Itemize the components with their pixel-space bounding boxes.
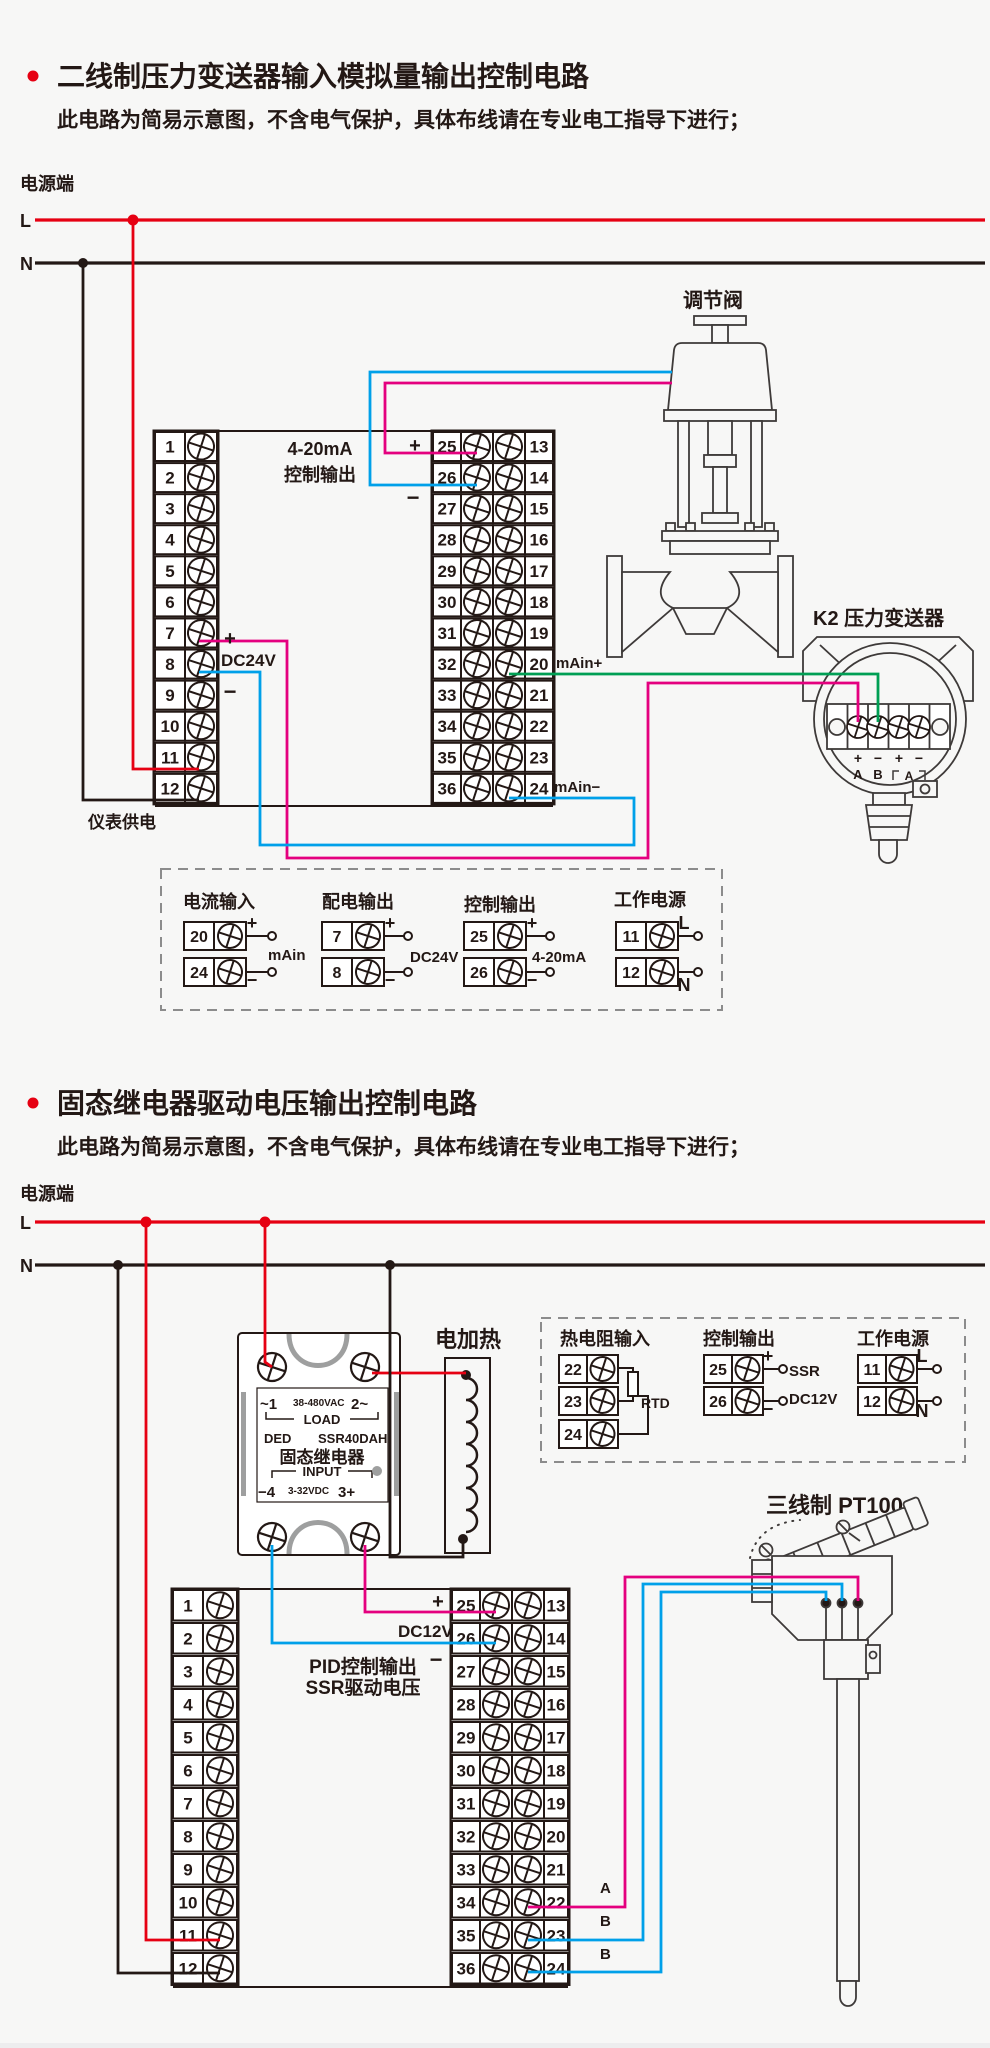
terminal-number-26: 26 bbox=[457, 1629, 476, 1648]
legend-terminal-26: 26 bbox=[709, 1394, 727, 1411]
terminal-number-32: 32 bbox=[438, 655, 457, 674]
legend-work-power-2: 工作电源11L12N bbox=[857, 1328, 941, 1421]
terminal-number-24: 24 bbox=[547, 1959, 566, 1978]
legend-control-output: 控制输出25+26−4-20mA bbox=[464, 894, 586, 990]
terminal-number-8: 8 bbox=[165, 655, 174, 674]
line-l-label: L bbox=[20, 1213, 31, 1233]
legend-terminal-25: 25 bbox=[470, 929, 488, 946]
ssr-model: SSR40DAH bbox=[318, 1431, 387, 1446]
ssr-load-label: LOAD bbox=[304, 1412, 341, 1427]
terminal-number-14: 14 bbox=[547, 1629, 566, 1648]
legend-terminal-20: 20 bbox=[190, 929, 208, 946]
term-b-label: B bbox=[873, 767, 882, 782]
legend-tag: + bbox=[527, 913, 538, 933]
terminal-number-28: 28 bbox=[438, 531, 457, 550]
pt100-sensor: 三线制 PT100 bbox=[750, 1493, 929, 2006]
wire-24-to-pt100 bbox=[528, 1592, 826, 1972]
heater-label: 电加热 bbox=[435, 1327, 501, 1352]
wiring-diagram-page: 二线制压力变送器输入模拟量输出控制电路 此电路为简易示意图，不含电气保护，具体布… bbox=[0, 0, 990, 2043]
dc12v-label: DC12V bbox=[398, 1622, 453, 1641]
terminal-number-1: 1 bbox=[183, 1596, 192, 1615]
terminal-strip-left: 123456789101112 bbox=[154, 430, 219, 805]
legend-terminal-24: 24 bbox=[190, 965, 208, 982]
ssr-term4: −4 bbox=[258, 1484, 276, 1501]
legend-terminal-11: 11 bbox=[623, 929, 640, 946]
heater-coil-icon bbox=[466, 1378, 477, 1532]
wire-b-label: B bbox=[600, 1946, 611, 1963]
terminal-number-4: 4 bbox=[165, 531, 175, 550]
terminal-number-13: 13 bbox=[530, 438, 549, 457]
terminal-number-13: 13 bbox=[547, 1596, 566, 1615]
dc24v-label: DC24V bbox=[221, 651, 276, 670]
terminal-number-11: 11 bbox=[179, 1926, 197, 1945]
valve-label: 调节阀 bbox=[683, 288, 743, 312]
term-sign: + bbox=[854, 750, 862, 766]
open-terminal-icon bbox=[404, 932, 412, 940]
section-1-subtitle: 此电路为简易示意图，不含电气保护，具体布线请在专业电工指导下进行； bbox=[57, 108, 750, 132]
term-sign: − bbox=[874, 750, 882, 766]
legend-tag: − bbox=[763, 1399, 774, 1419]
legend-control-output-2: 控制输出25+26−SSRDC12V bbox=[703, 1328, 837, 1419]
ssr-input-label: INPUT bbox=[303, 1464, 342, 1479]
output-type-label: 4-20mA bbox=[287, 439, 352, 459]
section-1-title: 二线制压力变送器输入模拟量输出控制电路 bbox=[57, 60, 590, 92]
open-terminal-icon bbox=[779, 1365, 787, 1373]
terminal-number-33: 33 bbox=[438, 686, 457, 705]
legend-terminal-11: 11 bbox=[864, 1362, 881, 1379]
terminal-number-5: 5 bbox=[165, 562, 174, 581]
legend-title: 配电输出 bbox=[322, 891, 394, 912]
terminal-number-15: 15 bbox=[530, 500, 549, 519]
minus-sign: − bbox=[407, 485, 420, 510]
legend-tag: − bbox=[527, 970, 538, 990]
terminal-number-16: 16 bbox=[530, 531, 549, 550]
terminal-number-19: 19 bbox=[530, 624, 549, 643]
legend-terminal-8: 8 bbox=[333, 965, 342, 982]
ssr-vac: 38-480VAC bbox=[293, 1398, 345, 1409]
open-terminal-icon bbox=[268, 968, 276, 976]
legend-side-label: mAin bbox=[268, 947, 306, 964]
terminal-number-12: 12 bbox=[161, 779, 180, 798]
open-terminal-icon bbox=[779, 1397, 787, 1405]
terminal-number-24: 24 bbox=[530, 779, 549, 798]
main-minus-label: mAin− bbox=[554, 779, 601, 796]
legend-terminal-24: 24 bbox=[564, 1427, 582, 1444]
terminal-strip-left-2: 123456789101112 bbox=[172, 1589, 239, 1986]
terminal-number-6: 6 bbox=[183, 1761, 192, 1780]
terminal-number-7: 7 bbox=[165, 624, 174, 643]
terminal-number-11: 11 bbox=[161, 748, 179, 767]
terminal-number-27: 27 bbox=[457, 1662, 476, 1681]
legend-terminal-26: 26 bbox=[470, 965, 488, 982]
open-terminal-icon bbox=[546, 968, 554, 976]
transmitter-label: K2 压力变送器 bbox=[813, 606, 945, 630]
legend-terminal-25: 25 bbox=[709, 1362, 727, 1379]
terminal-number-36: 36 bbox=[457, 1959, 476, 1978]
legend-terminal-7: 7 bbox=[333, 929, 342, 946]
wire-b-label: B bbox=[600, 1913, 611, 1930]
legend-title: 工作电源 bbox=[614, 889, 686, 910]
bullet-icon bbox=[28, 71, 39, 82]
ssr-led-icon bbox=[372, 1466, 382, 1476]
terminal-number-23: 23 bbox=[530, 748, 549, 767]
terminal-number-20: 20 bbox=[547, 1827, 566, 1846]
terminal-number-17: 17 bbox=[547, 1728, 566, 1747]
terminal-number-12: 12 bbox=[179, 1959, 198, 1978]
rtd-label: RTD bbox=[641, 1395, 670, 1411]
open-terminal-icon bbox=[268, 932, 276, 940]
terminal-number-34: 34 bbox=[457, 1893, 476, 1912]
legend-title: 电流输入 bbox=[183, 891, 255, 912]
terminal-strip-middle-2: 2513261427152816291730183119322033213422… bbox=[451, 1589, 570, 1986]
legend-terminal-12: 12 bbox=[863, 1394, 881, 1411]
legend-side-label: 4-20mA bbox=[532, 949, 586, 966]
main-plus-label: mAin+ bbox=[556, 655, 603, 672]
terminal-number-3: 3 bbox=[183, 1662, 192, 1681]
wire-a-label: A bbox=[600, 1880, 611, 1897]
terminal-number-2: 2 bbox=[165, 469, 174, 488]
line-l-label: L bbox=[20, 211, 31, 231]
term-a-label: A bbox=[853, 767, 863, 782]
legend-tag: + bbox=[247, 913, 258, 933]
terminal-number-1: 1 bbox=[165, 438, 174, 457]
legend-tag: + bbox=[763, 1346, 774, 1366]
legend-tag: N bbox=[916, 1401, 929, 1421]
control-valve: 调节阀 bbox=[607, 288, 793, 657]
terminal-number-10: 10 bbox=[161, 717, 180, 736]
terminal-number-4: 4 bbox=[183, 1695, 193, 1714]
terminal-number-17: 17 bbox=[530, 562, 549, 581]
terminal-number-5: 5 bbox=[183, 1728, 192, 1747]
legend-tag: L bbox=[679, 913, 690, 933]
legend-current-input: 电流输入20+24−mAin bbox=[183, 891, 306, 990]
solid-state-relay: ~1 38-480VAC 2~ LOAD DED SSR40DAH 固态继电器 … bbox=[238, 1333, 400, 1555]
terminal-number-10: 10 bbox=[179, 1893, 198, 1912]
section-2: 固态继电器驱动电压输出控制电路 此电路为简易示意图，不含电气保护，具体布线请在专… bbox=[20, 1087, 985, 2006]
ssr-term3: 3+ bbox=[338, 1484, 355, 1501]
ssr-drive-label: SSR驱动电压 bbox=[305, 1676, 420, 1699]
terminal-number-32: 32 bbox=[457, 1827, 476, 1846]
pid-output-label: PID控制输出 bbox=[309, 1655, 417, 1678]
bullet-icon bbox=[28, 1098, 39, 1109]
legend-tag: L bbox=[917, 1346, 928, 1366]
minus-sign: − bbox=[224, 679, 237, 704]
terminal-number-36: 36 bbox=[438, 779, 457, 798]
terminal-number-23: 23 bbox=[547, 1926, 566, 1945]
electric-heater: 电加热 bbox=[435, 1327, 501, 1553]
legend-title: 热电阻输入 bbox=[560, 1328, 650, 1349]
terminal-number-6: 6 bbox=[165, 593, 174, 612]
terminal-number-30: 30 bbox=[457, 1761, 476, 1780]
terminal-number-20: 20 bbox=[530, 655, 549, 674]
line-n-label: N bbox=[20, 1256, 33, 1276]
terminal-number-30: 30 bbox=[438, 593, 457, 612]
ssr-brand: DED bbox=[264, 1431, 291, 1446]
terminal-number-9: 9 bbox=[183, 1860, 192, 1879]
legend-side-label: SSR bbox=[789, 1363, 820, 1380]
open-terminal-icon bbox=[694, 932, 702, 940]
legend-tag: + bbox=[385, 913, 396, 933]
legend-title: 控制输出 bbox=[464, 894, 536, 915]
legend-side-label: DC12V bbox=[789, 1391, 837, 1408]
term-sign: + bbox=[895, 750, 903, 766]
plus-sign: + bbox=[432, 1591, 444, 1613]
terminal-number-29: 29 bbox=[457, 1728, 476, 1747]
terminal-number-3: 3 bbox=[165, 500, 174, 519]
pressure-transmitter: K2 压力变送器 + − + − A B A bbox=[803, 606, 973, 863]
terminal-number-27: 27 bbox=[438, 500, 457, 519]
section-2-subtitle: 此电路为简易示意图，不含电气保护，具体布线请在专业电工指导下进行； bbox=[57, 1135, 750, 1159]
minus-sign: − bbox=[430, 1647, 443, 1672]
power-terminal-label: 电源端 bbox=[20, 1183, 74, 1204]
open-terminal-icon bbox=[546, 932, 554, 940]
terminal-number-34: 34 bbox=[438, 717, 457, 736]
legend-supply-output: 配电输出7+8−DC24V bbox=[322, 891, 458, 990]
section-2-title: 固态继电器驱动电压输出控制电路 bbox=[57, 1087, 478, 1119]
plus-sign: + bbox=[409, 435, 421, 457]
terminal-number-9: 9 bbox=[165, 686, 174, 705]
terminal-number-8: 8 bbox=[183, 1827, 192, 1846]
terminal-number-35: 35 bbox=[457, 1926, 476, 1945]
open-terminal-icon bbox=[694, 968, 702, 976]
pt100-label: 三线制 PT100 bbox=[766, 1493, 903, 1518]
terminal-number-21: 21 bbox=[530, 686, 549, 705]
term-sign: − bbox=[915, 750, 923, 766]
terminal-number-2: 2 bbox=[183, 1629, 192, 1648]
ssr-term2: 2~ bbox=[351, 1396, 368, 1413]
line-n-label: N bbox=[20, 254, 33, 274]
legend-tag: N bbox=[678, 975, 691, 995]
terminal-number-19: 19 bbox=[547, 1794, 566, 1813]
section-1: 二线制压力变送器输入模拟量输出控制电路 此电路为简易示意图，不含电气保护，具体布… bbox=[20, 60, 985, 1010]
legend-work-power: 工作电源11L12N bbox=[614, 889, 702, 995]
terminal-number-21: 21 bbox=[547, 1860, 566, 1879]
legend-terminal-12: 12 bbox=[622, 965, 640, 982]
terminal-number-18: 18 bbox=[530, 593, 549, 612]
legend-terminal-23: 23 bbox=[564, 1394, 582, 1411]
wiring-diagram: 二线制压力变送器输入模拟量输出控制电路 此电路为简易示意图，不含电气保护，具体布… bbox=[0, 0, 990, 2043]
terminal-number-15: 15 bbox=[547, 1662, 566, 1681]
terminal-number-28: 28 bbox=[457, 1695, 476, 1714]
open-terminal-icon bbox=[933, 1365, 941, 1373]
power-terminal-label: 电源端 bbox=[20, 173, 74, 194]
terminal-number-29: 29 bbox=[438, 562, 457, 581]
terminal-number-22: 22 bbox=[530, 717, 549, 736]
terminal-number-31: 31 bbox=[438, 624, 457, 643]
terminal-number-35: 35 bbox=[438, 748, 457, 767]
legend-terminal-22: 22 bbox=[564, 1362, 582, 1379]
wire-main-minus-loop bbox=[199, 672, 634, 845]
open-terminal-icon bbox=[404, 968, 412, 976]
ssr-vdc: 3-32VDC bbox=[288, 1486, 329, 1497]
terminal-number-31: 31 bbox=[457, 1794, 476, 1813]
terminal-number-22: 22 bbox=[547, 1893, 566, 1912]
terminal-number-14: 14 bbox=[530, 469, 549, 488]
legend-tag: − bbox=[247, 970, 258, 990]
heater-top-terminal bbox=[461, 1370, 471, 1380]
meter-supply-label: 仪表供电 bbox=[87, 812, 156, 832]
open-terminal-icon bbox=[933, 1397, 941, 1405]
legend-tag: − bbox=[385, 970, 396, 990]
legend-side-label: DC24V bbox=[410, 949, 458, 966]
plus-sign: + bbox=[224, 628, 236, 650]
output-name-label: 控制输出 bbox=[284, 464, 356, 485]
terminal-number-7: 7 bbox=[183, 1794, 192, 1813]
terminal-number-33: 33 bbox=[457, 1860, 476, 1879]
terminal-number-16: 16 bbox=[547, 1695, 566, 1714]
terminal-number-18: 18 bbox=[547, 1761, 566, 1780]
ssr-term1: ~1 bbox=[260, 1396, 277, 1413]
